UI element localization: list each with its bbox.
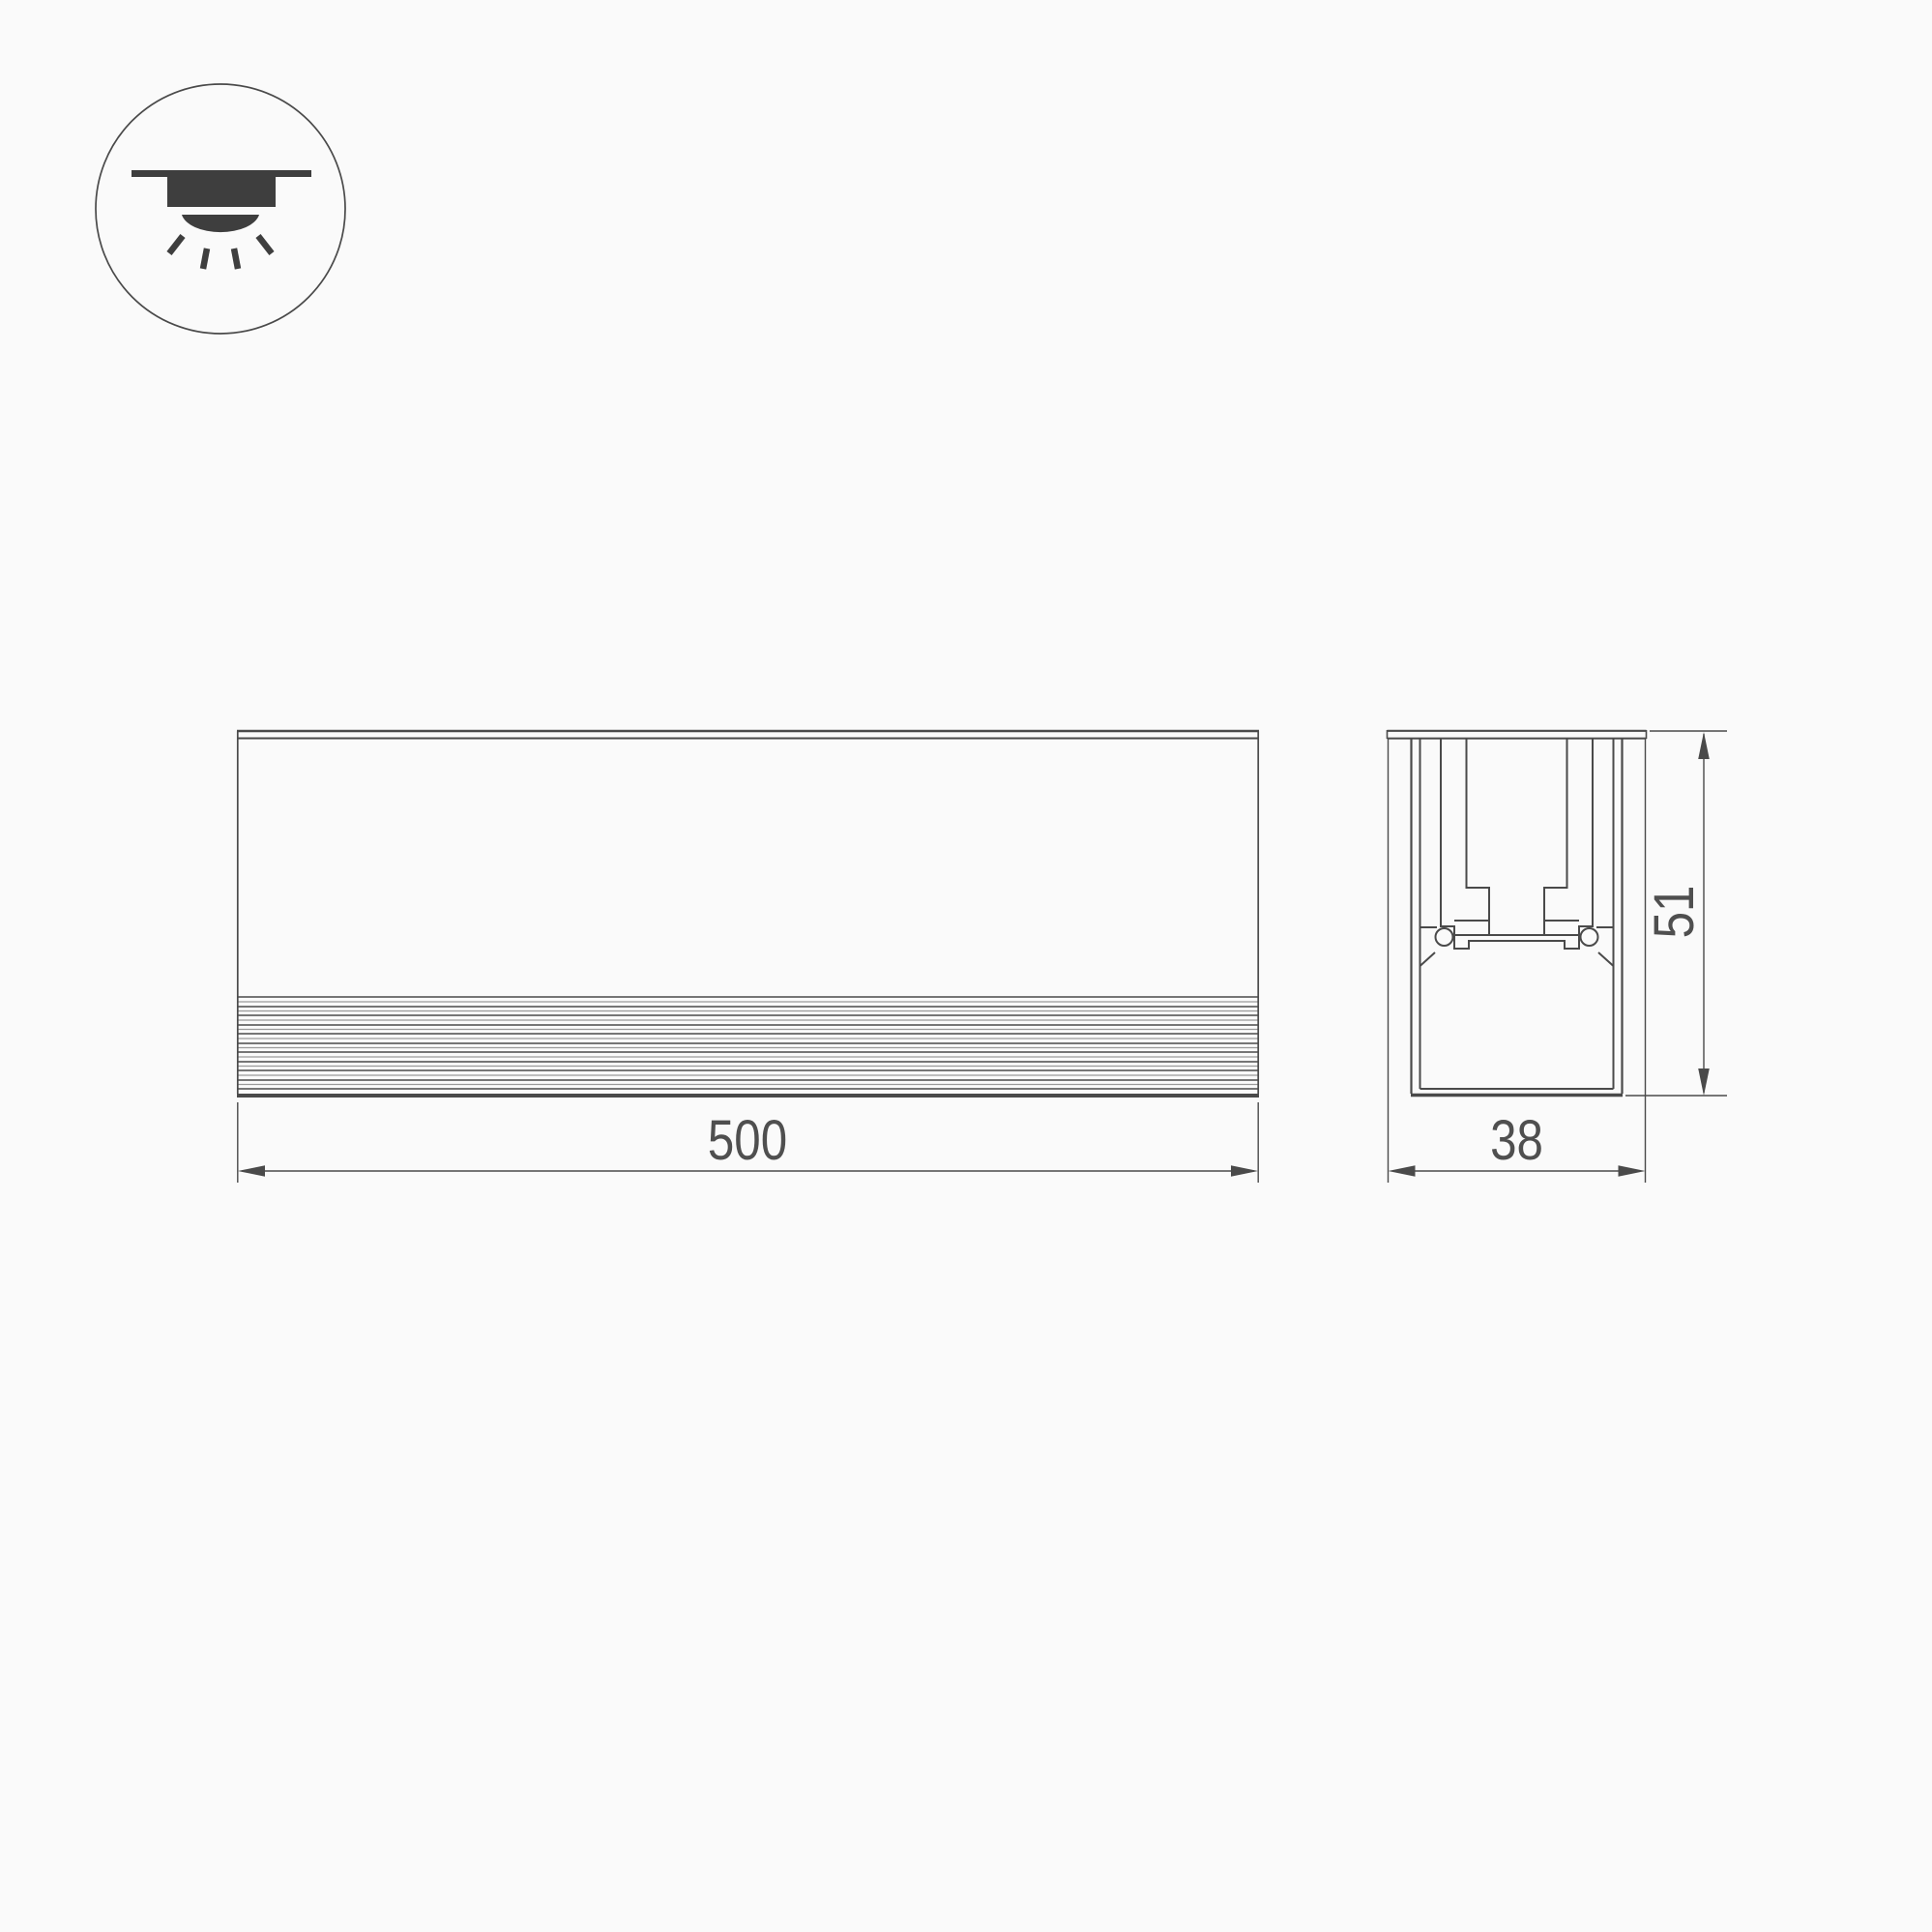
arrowhead-right	[1231, 1165, 1258, 1177]
icon-lamp-dome	[182, 215, 259, 232]
arrowhead-right	[1619, 1165, 1646, 1177]
technical-drawing: 500 38	[0, 0, 1932, 1932]
section-view: 38 51	[1388, 730, 1728, 1183]
icon-ceiling-and-housing	[132, 170, 311, 207]
icon-light-rays	[169, 236, 272, 269]
section-chamber-chamfers	[1420, 952, 1614, 966]
section-fins-and-platform	[1441, 739, 1593, 949]
icon-circle-outline	[96, 84, 345, 334]
section-inner-walls	[1420, 739, 1614, 1089]
front-length-label: 500	[708, 1109, 787, 1172]
section-height-dimension: 51	[1625, 731, 1727, 1096]
arrowhead-bottom	[1698, 1068, 1710, 1096]
section-clip-circle-left	[1436, 928, 1453, 946]
arrowhead-top	[1698, 732, 1710, 759]
front-view: 500	[237, 731, 1259, 1183]
recessed-downlight-icon	[96, 84, 345, 334]
front-length-dimension: 500	[238, 1102, 1258, 1183]
arrowhead-left	[1389, 1165, 1416, 1177]
section-width-label: 38	[1490, 1109, 1543, 1172]
section-outer-walls	[1412, 739, 1623, 1094]
section-clip-circle-right	[1581, 928, 1598, 946]
arrowhead-left	[238, 1165, 265, 1177]
section-central-cavity	[1467, 739, 1567, 935]
section-height-label: 51	[1643, 886, 1706, 939]
